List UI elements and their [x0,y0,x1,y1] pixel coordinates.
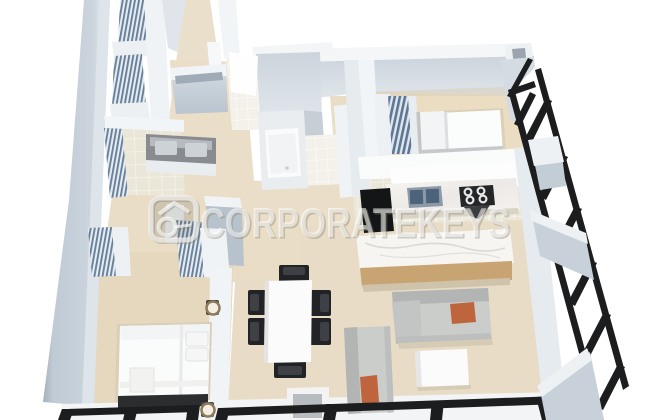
svg-text:CORPORATEKEYS: CORPORATEKEYS [200,199,510,246]
